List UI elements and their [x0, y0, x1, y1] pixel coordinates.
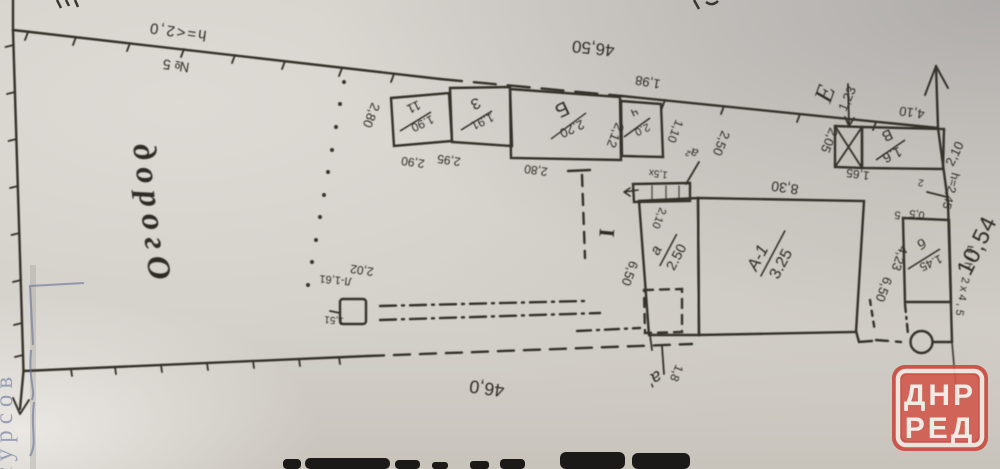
svg-text:1,51: 1,51: [323, 313, 344, 326]
svg-text:сурсов: сурсов: [0, 371, 18, 469]
svg-text:РЕД: РЕД: [905, 412, 975, 445]
svg-text:ДНР: ДНР: [904, 379, 976, 412]
svg-text:0,5: 0,5: [909, 207, 926, 221]
